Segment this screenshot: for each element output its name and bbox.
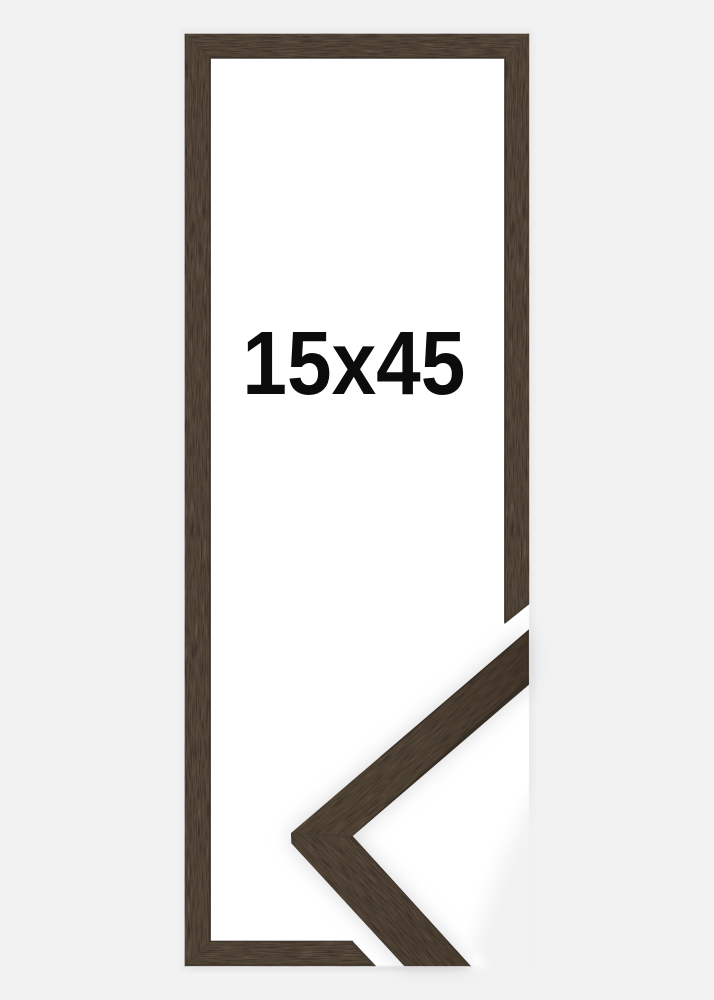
svg-text:15x45: 15x45 (242, 314, 465, 414)
